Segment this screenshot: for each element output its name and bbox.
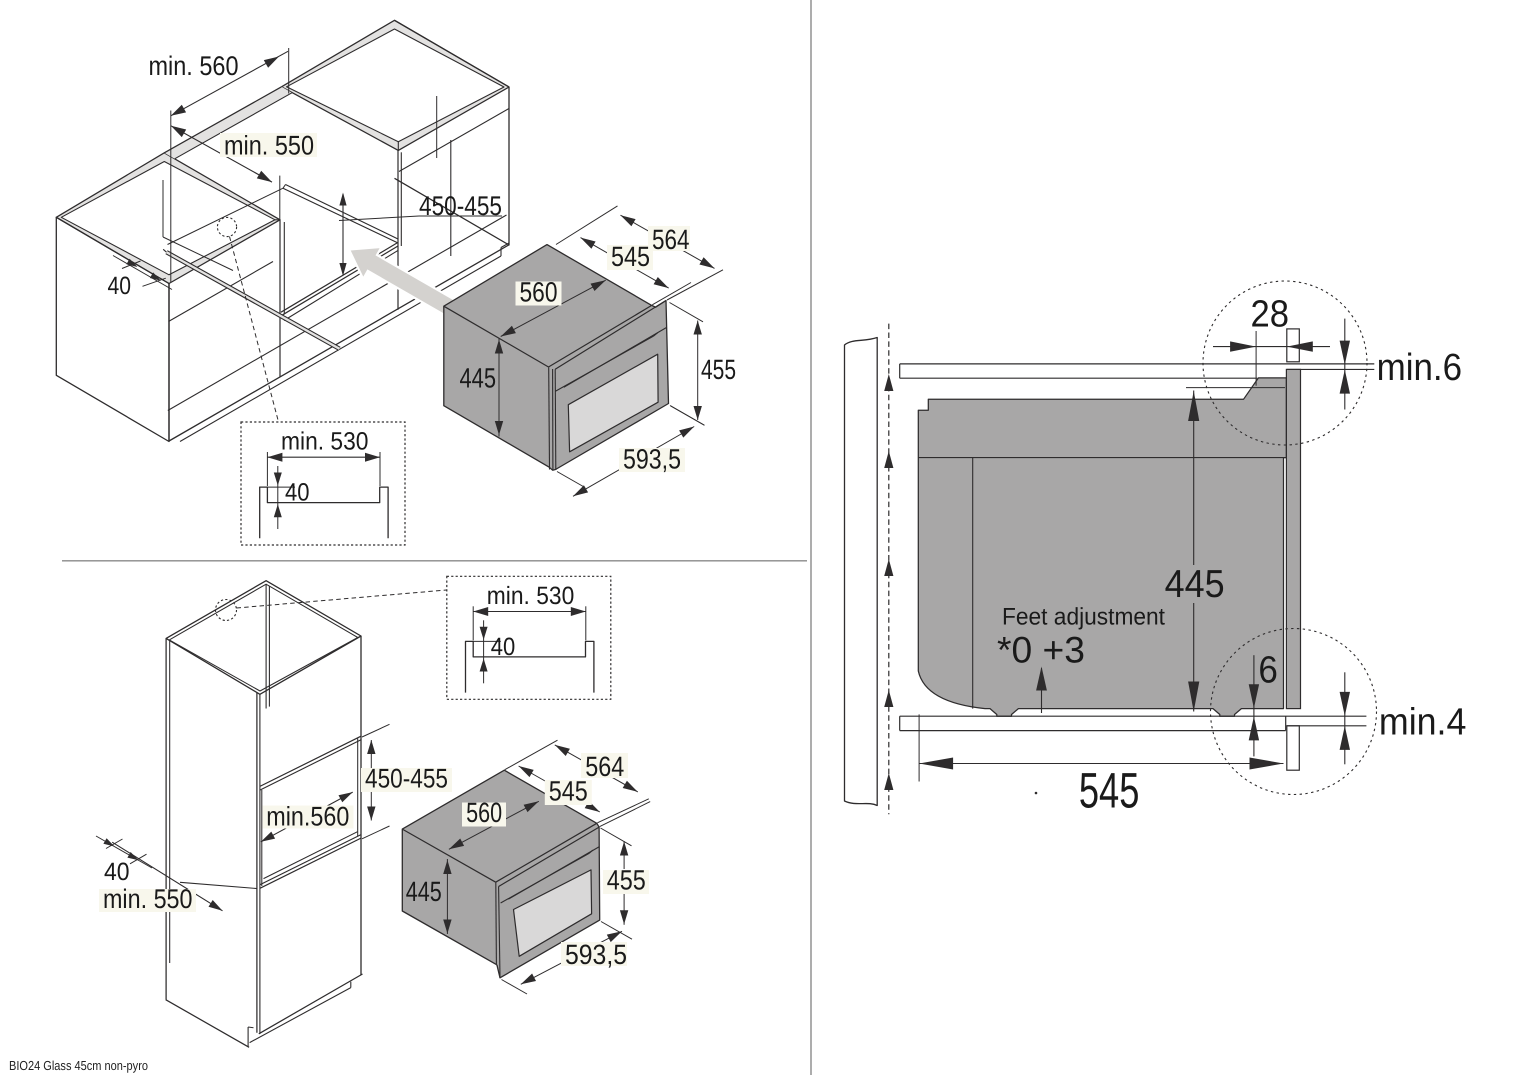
svg-text:min. 560: min. 560 [149,51,239,81]
svg-text:593,5: 593,5 [565,939,627,970]
svg-text:40: 40 [285,479,310,507]
svg-text:560: 560 [466,797,502,828]
svg-text:40: 40 [491,633,516,661]
svg-text:450-455: 450-455 [365,764,448,794]
svg-text:593,5: 593,5 [623,444,681,475]
svg-text:40: 40 [108,272,132,300]
svg-text:min. 550: min. 550 [103,884,193,914]
svg-text:445: 445 [406,876,442,907]
svg-text:min.560: min.560 [266,802,349,832]
svg-text:545: 545 [549,776,588,807]
svg-text:BIO24 Glass 45cm non-pyro: BIO24 Glass 45cm non-pyro [9,1058,148,1073]
svg-text:545: 545 [611,241,650,272]
svg-text:455: 455 [607,865,646,896]
svg-text:28: 28 [1251,294,1290,336]
svg-text:min.6: min.6 [1377,347,1463,389]
svg-text:560: 560 [520,277,558,308]
svg-text:545: 545 [1079,763,1140,819]
svg-text:min. 530: min. 530 [281,428,369,456]
svg-text:445: 445 [1165,563,1225,606]
svg-text:min. 550: min. 550 [224,131,314,161]
svg-text:40: 40 [104,858,130,886]
svg-text:min.4: min.4 [1379,702,1467,744]
svg-text:455: 455 [701,354,736,385]
svg-text:564: 564 [585,751,624,782]
svg-text:564: 564 [652,224,690,255]
svg-text:450-455: 450-455 [419,191,502,221]
svg-text:6: 6 [1258,650,1278,692]
svg-text:445: 445 [460,363,497,394]
svg-text:min. 530: min. 530 [487,582,575,610]
svg-text:*0 +3: *0 +3 [997,630,1085,671]
svg-text:Feet adjustment: Feet adjustment [1002,604,1165,631]
